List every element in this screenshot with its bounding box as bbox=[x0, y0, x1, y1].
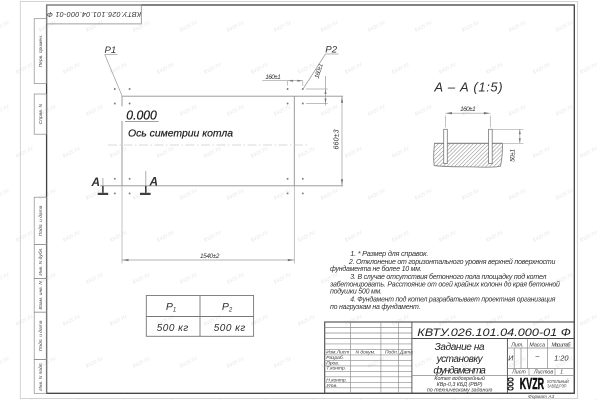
svg-text:КВТУ.026.101.04.000-01 Ф: КВТУ.026.101.04.000-01 Ф bbox=[47, 10, 141, 19]
svg-text:по нагрузкам на фундамент.: по нагрузкам на фундамент. bbox=[330, 303, 421, 311]
svg-text:А – А (1:5): А – А (1:5) bbox=[433, 80, 503, 95]
svg-text:Масса: Масса bbox=[529, 342, 545, 348]
svg-text:–: – bbox=[534, 354, 539, 361]
svg-text:подушки 500 мм.: подушки 500 мм. bbox=[330, 288, 382, 296]
svg-text:1: 1 bbox=[560, 369, 563, 375]
svg-text:ООО: ООО bbox=[507, 377, 516, 391]
svg-text:Дата: Дата bbox=[399, 350, 413, 356]
svg-text:3. В случае отсутствия бетонн: 3. В случае отсутствия бетонного пола пл… bbox=[350, 273, 546, 281]
svg-text:Инв. N дубл.: Инв. N дубл. bbox=[38, 247, 44, 275]
svg-text:2. Отклонение от горизонтальн: 2. Отклонение от горизонтального уровня … bbox=[348, 258, 556, 266]
svg-text:1540±2: 1540±2 bbox=[200, 253, 220, 260]
svg-text:забетонировать. Расстояние от: забетонировать. Расстояние от осей крайн… bbox=[329, 281, 560, 289]
svg-text:А: А bbox=[91, 175, 101, 189]
svg-text:KVZR: KVZR bbox=[520, 376, 545, 393]
svg-text:Инв. N подл.: Инв. N подл. bbox=[38, 362, 44, 391]
svg-text:660±3: 660±3 bbox=[333, 129, 340, 149]
svg-text:500 кг: 500 кг bbox=[157, 323, 189, 334]
svg-text:Разраб.: Разраб. bbox=[326, 355, 344, 361]
svg-text:500 кг: 500 кг bbox=[214, 323, 246, 334]
svg-text:Утв.: Утв. bbox=[326, 383, 337, 389]
svg-text:установку: установку bbox=[436, 354, 484, 365]
svg-text:4. Фундамент под котел разраб: 4. Фундамент под котел разрабатывает про… bbox=[350, 295, 555, 303]
svg-text:50±1: 50±1 bbox=[509, 148, 516, 161]
svg-text:фундамента не более 10 мм.: фундамента не более 10 мм. bbox=[330, 265, 422, 273]
svg-text:А: А bbox=[149, 175, 159, 189]
svg-text:Изм.Лист: Изм.Лист bbox=[326, 350, 349, 356]
svg-text:Т.контр.: Т.контр. bbox=[326, 366, 346, 372]
svg-text:Подп.: Подп. bbox=[385, 350, 398, 356]
svg-text:Ось симетрии котла: Ось симетрии котла bbox=[128, 129, 233, 140]
svg-text:Справ. N: Справ. N bbox=[38, 103, 44, 124]
svg-text:160±1: 160±1 bbox=[265, 74, 281, 81]
svg-text:Листов: Листов bbox=[533, 369, 554, 375]
svg-text:160±1: 160±1 bbox=[460, 106, 476, 113]
svg-text:Подп. и дата: Подп. и дата bbox=[38, 205, 44, 236]
svg-text:Лит.: Лит. bbox=[510, 342, 523, 348]
svg-text:Взам. инв. N: Взам. инв. N bbox=[38, 281, 44, 310]
svg-text:0.000: 0.000 bbox=[126, 108, 157, 123]
svg-text:КВТУ.026.101.04.000-01 Ф: КВТУ.026.101.04.000-01 Ф bbox=[417, 327, 571, 339]
svg-text:N докум.: N докум. bbox=[356, 350, 376, 356]
svg-text:1:20: 1:20 bbox=[554, 354, 569, 363]
svg-text:Пров.: Пров. bbox=[326, 360, 339, 366]
svg-text:Формат А3: Формат А3 bbox=[528, 394, 555, 400]
svg-text:1. * Размер для справок.: 1. * Размер для справок. bbox=[350, 250, 428, 258]
svg-text:Подп. и дата: Подп. и дата bbox=[38, 320, 44, 351]
svg-text:Лист: Лист bbox=[511, 369, 526, 375]
svg-text:Задание на: Задание на bbox=[435, 342, 485, 353]
svg-text:по техническому заданию: по техническому заданию bbox=[427, 388, 492, 394]
svg-text:Н.контр.: Н.контр. bbox=[326, 377, 347, 383]
svg-text:фундамента: фундамента bbox=[433, 365, 486, 377]
svg-text:ЗАВОД РЭП: ЗАВОД РЭП bbox=[547, 384, 566, 389]
svg-text:Перв. примен.: Перв. примен. bbox=[38, 35, 44, 68]
svg-text:Масштаб: Масштаб bbox=[552, 342, 572, 348]
